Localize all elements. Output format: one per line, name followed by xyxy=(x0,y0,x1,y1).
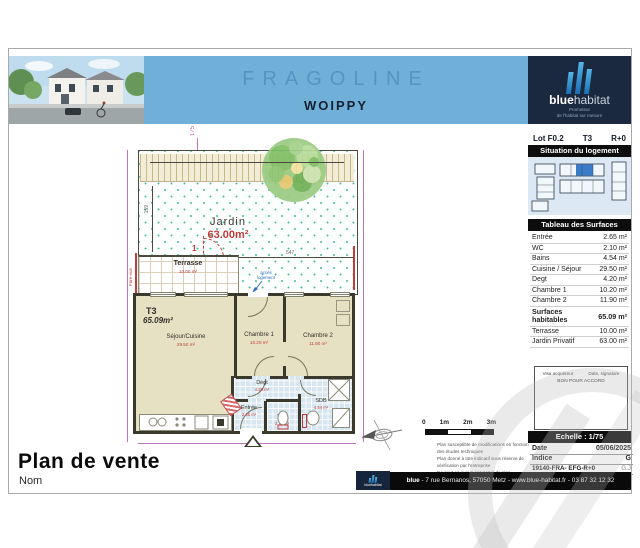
brand-logo: bluehabitat Promoteur de l'habitat sur m… xyxy=(528,56,631,124)
brand-tagline: Promoteur de l'habitat sur mesure xyxy=(557,107,602,118)
room-entree-area: 2.65 m² xyxy=(234,412,264,417)
pare-vue-label: Pare-vue xyxy=(128,268,133,286)
garden-label: Jardin xyxy=(190,216,266,228)
toilet xyxy=(276,410,290,430)
lot-number: Lot F0.2 xyxy=(533,134,564,143)
houses-illustration xyxy=(9,56,144,124)
scalebar xyxy=(425,429,494,435)
surface-row: Chambre 110.20 m² xyxy=(530,286,629,297)
pink-dim-left xyxy=(127,150,128,442)
type-area: 65.09m² xyxy=(143,316,173,325)
room-chambre2-area: 11.90 m² xyxy=(295,341,341,346)
scalebar-labels: 0 1m 2m 3m xyxy=(422,419,496,426)
wall xyxy=(298,394,301,431)
plan-de-vente-sheet: FRAGOLINE WOIPPY bluehabitat Promoteur d… xyxy=(0,0,640,548)
project-name: FRAGOLINE xyxy=(144,68,528,91)
wall xyxy=(266,399,300,402)
title-band: FRAGOLINE WOIPPY xyxy=(144,56,528,124)
pare-vue-screen-right xyxy=(353,246,355,290)
date-signature-label: Date, signature xyxy=(588,371,619,376)
terrace-area-value: 10.00 m² xyxy=(158,269,218,274)
washing-machine-line xyxy=(332,408,350,428)
surface-row: Terrasse10.00 m² xyxy=(530,327,629,338)
lot-type: T3 xyxy=(583,134,592,143)
room-sejour-area: 29.50 m² xyxy=(158,342,214,347)
access-label: accès logement xyxy=(246,270,286,280)
wall xyxy=(283,296,286,342)
wardrobe xyxy=(336,314,350,326)
entrance-door xyxy=(240,428,262,435)
terrace-label: Terrasse xyxy=(158,260,218,267)
signature-box: Visa acquéreur Date, signature BON POUR … xyxy=(534,366,628,430)
surfaces-title-bar: Tableau des Surfaces xyxy=(528,219,631,231)
footer-brand-logo: bluehabitat xyxy=(356,471,390,490)
situation-title-bar: Situation du logement xyxy=(528,145,631,157)
surface-row: Cuisine / Séjour29.50 m² xyxy=(530,265,629,276)
buyer-name-label: Nom xyxy=(19,475,42,487)
surface-row: Bains4.54 m² xyxy=(530,254,629,265)
window xyxy=(284,292,304,297)
bon-pour-accord-label: BON POUR ACCORD xyxy=(535,379,627,384)
dim-line-top xyxy=(150,162,344,163)
pink-dim-right xyxy=(363,150,364,442)
room-sejour-label: Séjour/Cuisine xyxy=(158,334,214,340)
surface-row: Entrée2.65 m² xyxy=(530,233,629,244)
window xyxy=(330,292,350,297)
project-city: WOIPPY xyxy=(144,98,528,113)
project-photo xyxy=(9,56,144,124)
room-degt-label: Dégt xyxy=(244,380,280,386)
highlighted-lot xyxy=(576,164,593,175)
window xyxy=(184,292,228,297)
window xyxy=(150,292,176,297)
bluehabitat-bars-icon xyxy=(566,60,593,94)
room-chambre1-label: Chambre 1 xyxy=(236,332,282,338)
bluehabitat-bars-icon xyxy=(369,475,377,483)
surface-row: Chambre 211.90 m² xyxy=(530,296,629,307)
shower-lines xyxy=(328,379,350,401)
wall xyxy=(264,401,267,431)
visa-label: Visa acquéreur xyxy=(543,371,574,376)
room-chambre2-label: Chambre 2 xyxy=(295,333,341,339)
surfaces-table: Entrée2.65 m² WC2.10 m² Bains4.54 m² Cui… xyxy=(530,233,629,348)
gate-number: 1 xyxy=(192,244,196,253)
wall xyxy=(270,376,288,379)
dim-value-height: 159 xyxy=(144,205,150,213)
washbasin xyxy=(306,410,320,426)
lot-level: R+0 xyxy=(611,134,626,143)
radiator xyxy=(302,414,307,428)
dim-value-plot: 175 xyxy=(190,126,196,136)
footer-address-bar: blue - 7 rue Bernanos, 57050 Metz - www.… xyxy=(390,472,631,490)
dim-line-mid xyxy=(238,257,354,258)
surfaces-total-row: Surfaceshabitables 65.09 m² xyxy=(530,307,629,327)
brand-name: bluehabitat xyxy=(549,94,610,107)
situation-map xyxy=(528,157,631,215)
dim-line-left xyxy=(152,186,153,252)
pink-dim-top-tick xyxy=(197,138,198,150)
type-label: T3 xyxy=(146,306,157,316)
sheet-title: Plan de vente xyxy=(18,450,160,474)
dim-value-width: 547 xyxy=(286,250,294,256)
surface-row: Degt4.20 m² xyxy=(530,275,629,286)
north-compass-icon xyxy=(360,416,404,454)
room-chambre1-area: 10.20 m² xyxy=(236,340,282,345)
wardrobe xyxy=(336,300,350,312)
entrance-marker-icon xyxy=(244,435,262,447)
room-degt-area: 4.20 m² xyxy=(244,387,280,392)
garden-area-value: 63.00m² xyxy=(186,229,270,241)
scale-title-bar: Echelle : 1/75 xyxy=(528,431,631,443)
tree-illustration xyxy=(252,128,336,212)
kitchen-fixtures xyxy=(139,414,232,431)
surface-row: Jardin Privatif63.00 m² xyxy=(530,337,629,348)
surface-row: WC2.10 m² xyxy=(530,244,629,255)
